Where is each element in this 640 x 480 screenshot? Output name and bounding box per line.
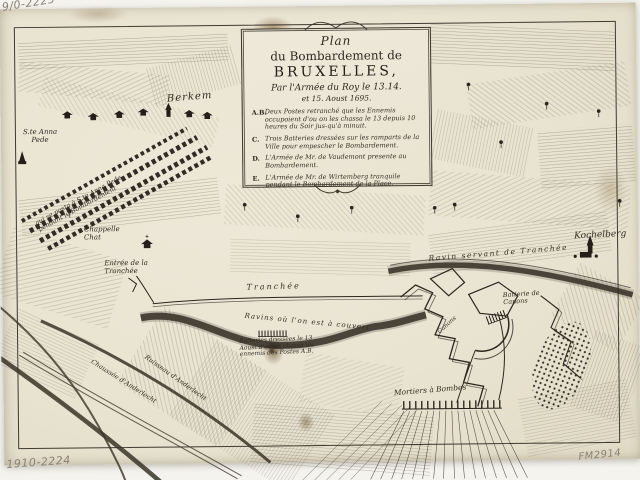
cartouche-bottom-ornament [312,184,362,197]
map-sheet: Berkem S.te Anna Pede qui se posta à S.t… [0,3,640,466]
legend-item: D. L'Armée de Mr. de Vaudemont presente … [252,153,422,170]
legend-key: C. [252,136,265,151]
ste-anna-pede-chapel-icon [18,151,26,164]
map-title-line3: BRUXELLES, [242,63,430,81]
legend-item: C. Trois Batteries dressées sur les ramp… [252,134,422,151]
legend-text: Deux Postes retranché que les Ennemis oc… [265,107,422,132]
chappelle-chat-icon [142,235,152,248]
map-plate: Berkem S.te Anna Pede qui se posta à S.t… [0,0,640,480]
legend-item: A.B. Deux Postes retranché que les Ennem… [252,107,422,132]
scanned-map-page: Berkem S.te Anna Pede qui se posta à S.t… [0,0,640,480]
map-title-line4: Par l'Armée du Roy le 13.14. [242,82,430,94]
legend-key: D. [252,155,265,170]
map-legend: A.B. Deux Postes retranché que les Ennem… [252,107,423,190]
map-label-batterie-canons: Batterie de Canons [503,290,541,307]
legend-text: L'Armée de Mr. de Vaudemont presente au … [265,153,422,170]
map-label-entree-tranchee: Entrée de la Tranchée [104,260,148,276]
legend-key: E. [252,174,265,189]
legend-text: Trois Batteries dressées sur les rampart… [265,134,422,151]
title-cartouche: Plan du Bombardement de BRUXELLES, Par l… [241,27,433,188]
map-title-line2: du Bombardement de [242,48,430,64]
map-label-chappelle-chat: Chappelle Chat [84,226,120,242]
trench-entrance-mark [128,278,136,292]
map-title-line1: Plan [242,33,430,49]
cartouche-top-ornament [301,18,371,31]
map-title-line5: et 15. Aoust 1695. [243,93,431,104]
map-label-tranchee: Tranchée [247,282,301,292]
map-label-ste-anna-pede: S.te Anna Pede [23,129,57,145]
legend-key: A.B. [252,109,265,132]
map-label-batterie-13: Batteries dressées le 13 Aoust d'ou on c… [239,335,314,359]
